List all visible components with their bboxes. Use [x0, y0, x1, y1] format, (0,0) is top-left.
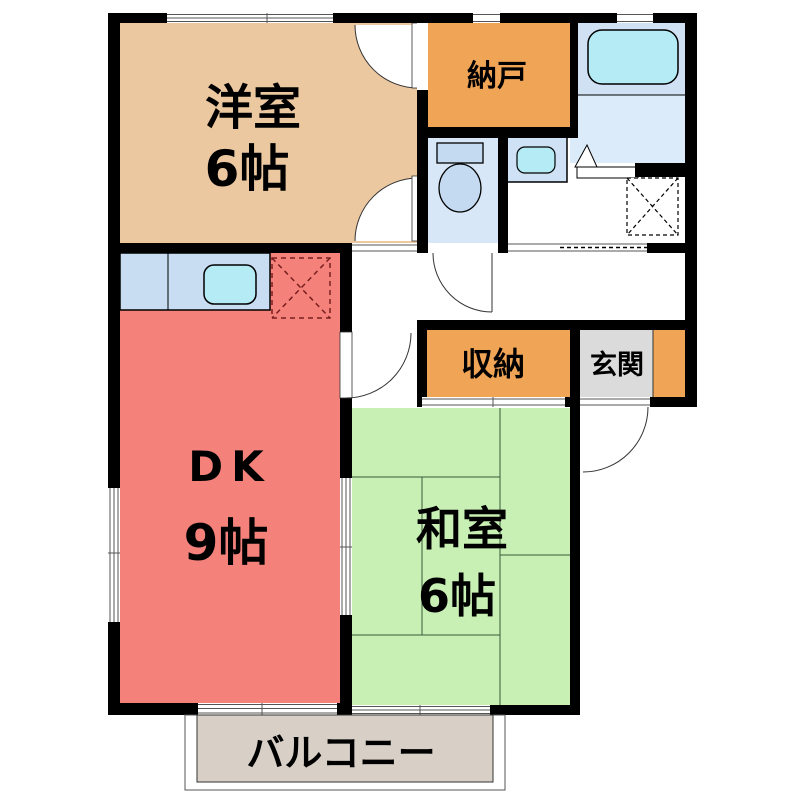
label-balcony: バルコニー [246, 731, 435, 775]
window-japanese-bottom [352, 705, 490, 715]
entrance-door-arc [583, 407, 648, 472]
kitchen-sink [204, 265, 256, 304]
label-dk: DK [188, 442, 271, 491]
label-dk-size: 9帖 [184, 514, 269, 572]
doorway-toilet [428, 243, 498, 253]
sliding-door-closet [422, 397, 565, 407]
window-storeroom-top [473, 13, 500, 23]
floorplan-svg: 洋室 6帖 納戸 DK 9帖 収納 玄関 和室 6帖 バルコニー [0, 0, 800, 800]
window-dk-bottom [198, 703, 337, 715]
floorplan: 洋室 6帖 納戸 DK 9帖 収納 玄関 和室 6帖 バルコニー [0, 0, 800, 800]
label-closet: 収納 [461, 345, 525, 383]
bath-threshold [577, 167, 638, 178]
label-storeroom: 納戸 [467, 59, 527, 94]
label-japanese-size: 6帖 [418, 569, 496, 623]
toilet-icon [437, 143, 483, 212]
window-bath-top [617, 13, 653, 23]
shoe-cabinet [653, 330, 685, 397]
window-dk-left [108, 488, 120, 622]
label-western-room: 洋室 [205, 80, 301, 136]
bathtub [588, 30, 678, 84]
doorway-entrance [580, 397, 650, 407]
label-entrance: 玄関 [590, 349, 644, 381]
label-japanese-room: 和室 [416, 502, 508, 556]
sliding-door-dk-japanese [340, 478, 352, 615]
washroom-edge [508, 244, 647, 251]
doorway-storeroom [417, 23, 428, 90]
room-japanese [352, 408, 570, 705]
washbasin-icon [517, 147, 555, 173]
doorway-western [352, 243, 417, 253]
window-western-top [167, 13, 333, 23]
dk-door-arc [346, 333, 411, 398]
washing-machine-space [627, 178, 678, 235]
label-western-size: 6帖 [205, 140, 290, 198]
toilet-door-arc [433, 253, 492, 312]
dk-door-leaf [340, 332, 352, 398]
